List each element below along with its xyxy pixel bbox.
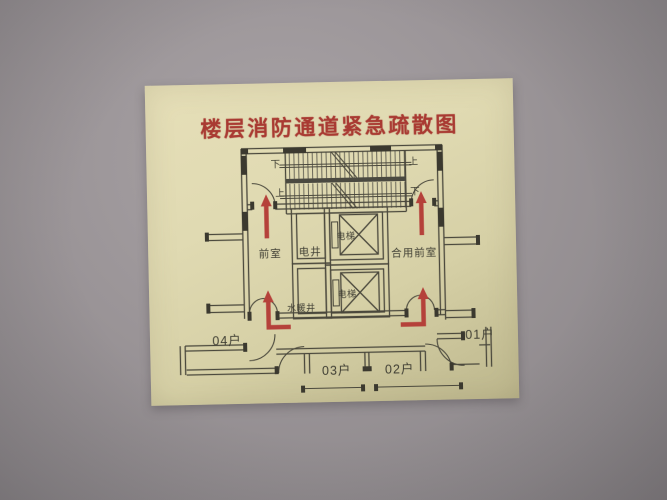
double-door-front-room (249, 298, 277, 314)
evacuation-sign: 楼层消防通道紧急疏散图 (145, 78, 520, 406)
label-unit-02: 02户 (385, 363, 415, 376)
label-front-room: 前室 (259, 249, 282, 260)
stair-label-up-lower-left: 上 (275, 189, 285, 199)
label-electrical-shaft: 电井 (299, 247, 322, 258)
stair-label-down-upper-left: 下 (271, 160, 281, 170)
label-shared-front-room: 合用前室 (391, 248, 437, 259)
label-elevator-lower: 电梯 (338, 290, 357, 299)
label-unit-01: 01户 (465, 328, 495, 341)
stair-label-down-lower-right: 下 (410, 187, 420, 197)
door-unit-02 (425, 344, 452, 371)
door-unit-03 (278, 347, 305, 374)
floor-plan (145, 78, 520, 406)
photo-background: 楼层消防通道紧急疏散图 (0, 0, 667, 500)
label-unit-04: 04户 (212, 335, 242, 348)
label-plumbing-shaft: 水暖井 (287, 304, 316, 314)
evacuation-arrow-shared-front-room-up (421, 202, 422, 235)
label-unit-03: 03户 (322, 364, 352, 377)
stair-label-up-upper-right: 上 (408, 157, 418, 167)
door-unit-04 (249, 334, 276, 361)
label-elevator-upper: 电梯 (336, 232, 355, 241)
evacuation-arrow-front-room-up (266, 205, 267, 238)
